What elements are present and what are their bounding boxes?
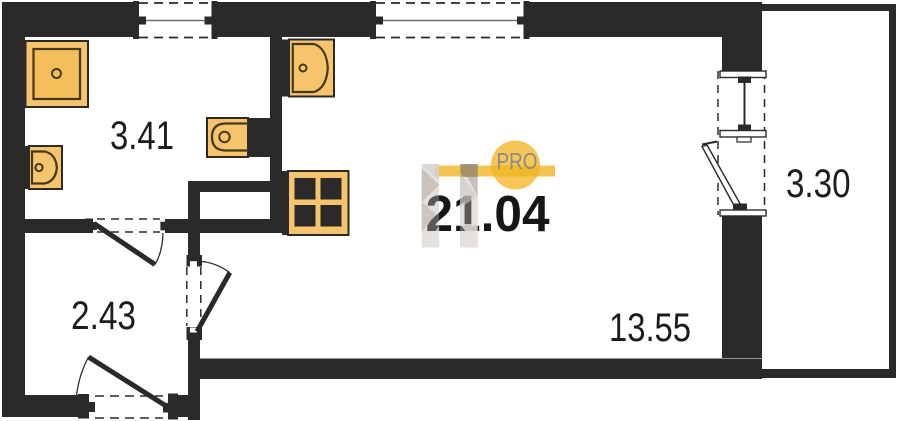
svg-text:3.30: 3.30 bbox=[786, 162, 851, 206]
svg-text:PRO: PRO bbox=[497, 148, 538, 174]
svg-text:13.55: 13.55 bbox=[609, 306, 691, 350]
svg-text:21.04: 21.04 bbox=[426, 185, 551, 242]
svg-text:2.43: 2.43 bbox=[71, 294, 136, 338]
svg-text:3.41: 3.41 bbox=[110, 114, 174, 158]
